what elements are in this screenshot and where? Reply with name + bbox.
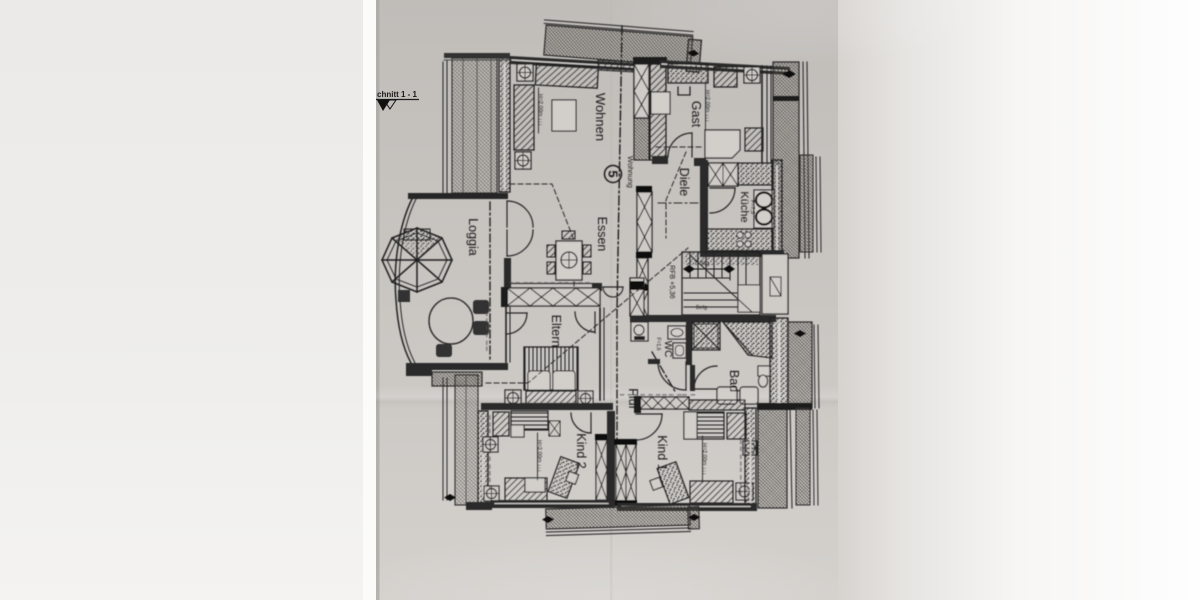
svg-text:5: 5 xyxy=(606,170,621,177)
svg-text:Wohnen: Wohnen xyxy=(593,93,608,141)
svg-text:Küche: Küche xyxy=(738,191,750,222)
svg-text:H=2,00m ↓↓↓: H=2,00m ↓↓↓ xyxy=(536,440,542,472)
svg-text:Belg: Belg xyxy=(696,305,707,311)
svg-text:F=7,5: F=7,5 xyxy=(749,200,755,214)
svg-text:F=1,6: F=1,6 xyxy=(655,338,661,351)
svg-text:Essen: Essen xyxy=(595,217,609,252)
svg-text:Kind 1: Kind 1 xyxy=(655,435,669,470)
svg-text:Gast: Gast xyxy=(689,101,703,128)
svg-text:H=2,00m ↓↓↓: H=2,00m ↓↓↓ xyxy=(704,90,710,122)
svg-text:Eltern: Eltern xyxy=(549,315,563,348)
svg-text:Kind 2: Kind 2 xyxy=(574,433,588,468)
svg-text:WC: WC xyxy=(662,341,673,358)
svg-text:H=2,00m ↓↓↓: H=2,00m ↓↓↓ xyxy=(701,443,707,475)
svg-text:H=2,00m ↓↓↓: H=2,00m ↓↓↓ xyxy=(537,94,543,126)
svg-text:chnitt 1 - 1: chnitt 1 - 1 xyxy=(377,90,418,99)
svg-text:7 Stg.: 7 Stg. xyxy=(694,260,711,267)
svg-text:Wohnung: Wohnung xyxy=(626,156,635,188)
svg-text:Diele: Diele xyxy=(677,168,691,197)
svg-text:Bad: Bad xyxy=(727,370,741,392)
svg-text:RFB +5,36: RFB +5,36 xyxy=(668,265,675,299)
svg-text:Loggia: Loggia xyxy=(466,218,480,256)
